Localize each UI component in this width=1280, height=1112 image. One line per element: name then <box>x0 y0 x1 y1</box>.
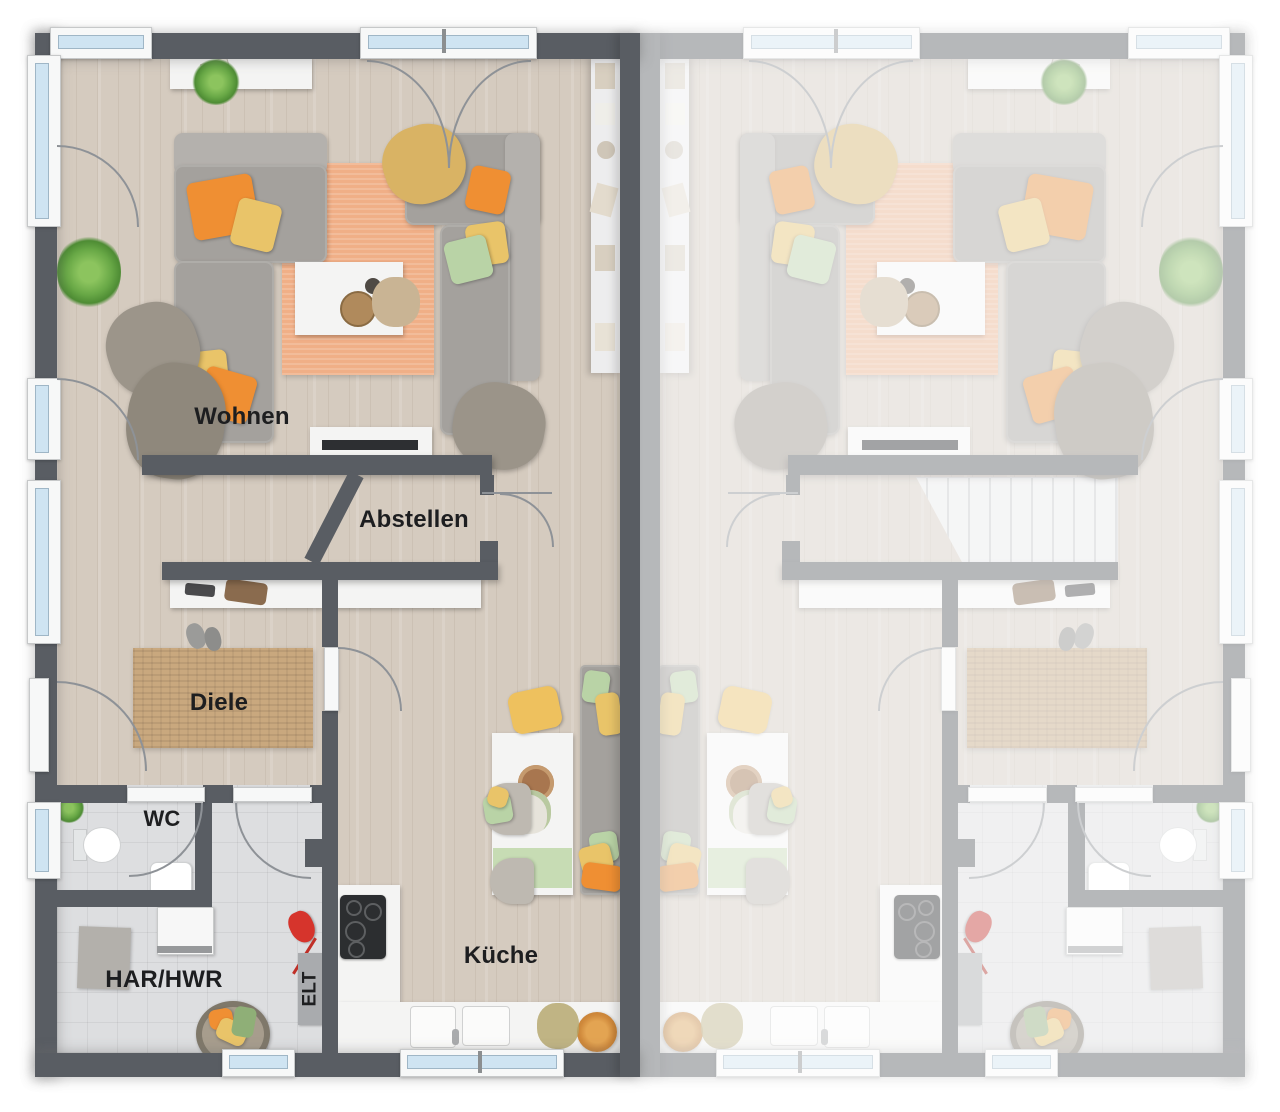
wc-door-leaf <box>127 787 205 802</box>
kitchen-door-leaf <box>941 647 956 711</box>
burner-2 <box>364 903 382 921</box>
window-top-living-glass <box>58 35 144 49</box>
vacuum-stick <box>963 937 988 974</box>
utility-door-leaf <box>968 787 1047 802</box>
floorplan: Wohnen Abstellen Diele WC HAR/HWR ELT Kü… <box>0 0 1280 1112</box>
cooktop <box>894 895 940 959</box>
pillow-yellow-2 <box>1050 349 1098 397</box>
curtain-arc-right <box>749 60 832 168</box>
storage-door-leaf <box>482 492 552 494</box>
books-3 <box>661 183 690 218</box>
window-left-mid <box>1219 378 1253 460</box>
window-top-french-mullion <box>442 29 446 53</box>
window-left-wc <box>1219 802 1253 879</box>
kitchen-plant-sprigs <box>537 1003 579 1049</box>
sink-basin-2 <box>770 1006 818 1046</box>
wall-party <box>620 33 640 1077</box>
shoe-1 <box>1071 621 1097 652</box>
faucet <box>821 1029 828 1045</box>
tv <box>322 440 418 450</box>
palm-plant <box>1159 233 1223 311</box>
wall-left <box>1223 33 1245 1077</box>
coffee-table-tray <box>340 291 376 327</box>
dining-chair-stone-2 <box>746 858 790 904</box>
dining-chair-yellow <box>716 684 774 735</box>
kitchen-door-leaf <box>324 647 339 711</box>
tv <box>862 440 958 450</box>
sofa-left-chaise <box>1006 261 1106 443</box>
wall-wc-top-a <box>55 785 127 803</box>
window-bottom-utility-glass <box>229 1055 288 1069</box>
window-top-french-glass <box>751 35 912 49</box>
label-wc: WC <box>143 808 180 830</box>
window-bottom-kitchen-mullion <box>478 1051 482 1073</box>
toilet-tank <box>1193 829 1207 861</box>
pillow-yellow-3 <box>770 220 815 267</box>
vase <box>597 141 615 159</box>
tv-board <box>848 427 970 455</box>
bench-pillow-green-bottom <box>660 830 692 864</box>
sink-basin-2 <box>462 1006 510 1046</box>
laundry-green-towel <box>1023 1005 1050 1038</box>
balcony-door-arc-1 <box>1141 145 1223 227</box>
bench-pillow-orange <box>580 861 623 892</box>
bench-pillow-yellow-bottom <box>665 842 703 877</box>
dining-bench <box>658 665 700 895</box>
wall-bottom <box>640 1053 1245 1077</box>
fruit-bowl <box>577 1012 617 1052</box>
vase <box>665 141 683 159</box>
balcony-door-arc-2 <box>1141 378 1223 460</box>
wall-living-storage <box>142 455 492 475</box>
dried-plant <box>372 277 420 327</box>
books-4 <box>595 245 615 271</box>
bookshelf-party-wall <box>659 55 689 373</box>
toilet-bowl <box>1159 827 1197 863</box>
coffee-table <box>877 262 985 335</box>
pillow-orange-3 <box>768 164 816 215</box>
laundry-basket <box>1010 1001 1084 1067</box>
table-runner <box>708 848 787 888</box>
wall-wc-right <box>1068 803 1085 890</box>
label-storage: Abstellen <box>359 508 469 532</box>
sofa-right-backrest <box>505 133 540 381</box>
books-1 <box>595 63 615 89</box>
books-3 <box>589 183 618 218</box>
burner-3 <box>345 921 366 942</box>
burner-2 <box>898 903 916 921</box>
storage-box <box>1149 926 1203 990</box>
window-bottom-kitchen-glass <box>723 1055 873 1069</box>
kitchen-door-arc <box>878 647 942 711</box>
wall-hall-kitchen-upper <box>942 562 958 647</box>
label-electrical: ELT <box>301 971 320 1006</box>
burner-3 <box>914 921 935 942</box>
window-left-wc-glass <box>35 809 49 872</box>
wall-wc-bottom <box>1068 890 1225 907</box>
hall-sideboard-right <box>799 578 945 608</box>
window-bottom-utility-glass <box>992 1055 1051 1069</box>
wall-wc-top-a <box>1153 785 1225 803</box>
armchair-throw-2 <box>1047 357 1160 486</box>
dining-chair-stone-1 <box>749 783 797 835</box>
burner-4 <box>348 941 365 958</box>
wall-hall-kitchen-lower <box>322 711 338 1053</box>
pillow-green-1 <box>785 233 837 285</box>
wall-storage-jamb-bottom <box>782 541 800 570</box>
wall-party <box>640 33 660 1077</box>
sofa-left-back <box>953 133 1106 175</box>
window-bottom-utility <box>985 1049 1058 1077</box>
books-2 <box>595 103 615 125</box>
entrance-door-leaf <box>29 678 49 772</box>
living-rug <box>846 163 998 375</box>
sofa-right-seat <box>770 225 840 435</box>
burner-1 <box>346 900 362 916</box>
wall-wc-bottom <box>55 890 212 907</box>
washing-machine-front <box>157 946 212 953</box>
storage-door-arc <box>726 493 780 547</box>
window-top-french-mullion <box>834 29 838 53</box>
keys-glasses <box>185 583 216 598</box>
fruit-bowl <box>663 1012 703 1052</box>
kitchen-counter-left <box>880 885 942 1005</box>
elt-cabinet <box>958 953 982 1025</box>
label-living: Wohnen <box>194 405 289 429</box>
blanket-tan <box>805 114 907 214</box>
sofa-right-top-seat <box>740 133 875 225</box>
dining-chair-stone-2 <box>490 858 534 904</box>
wall-hall-kitchen-upper <box>322 562 338 647</box>
window-left-mid-glass <box>35 385 49 453</box>
wall-hall-kitchen-lower <box>942 711 958 1053</box>
dried-plant <box>860 277 908 327</box>
hall-sideboard-right <box>335 578 481 608</box>
window-top-living <box>1128 27 1230 59</box>
napkin-yellow <box>769 784 794 809</box>
window-top-french <box>743 27 920 59</box>
unit-left: Wohnen Abstellen Diele WC HAR/HWR ELT Kü… <box>35 33 640 1077</box>
staircase <box>916 477 1118 563</box>
kitchen-counter-bottom <box>658 1002 942 1053</box>
elt-wall-box <box>957 839 975 867</box>
centerpiece-bowl <box>726 765 762 801</box>
shoe-2 <box>1057 626 1078 653</box>
wall-living-storage <box>788 455 1138 475</box>
plant-sideboard <box>1039 59 1089 105</box>
centerpiece-flowers <box>729 790 775 834</box>
wall-wc-top-b <box>1047 785 1077 803</box>
storage-door-leaf <box>728 492 798 494</box>
label-hallway: Diele <box>190 691 248 715</box>
wall-storage-jamb-top <box>786 475 800 495</box>
dining-table <box>707 733 788 895</box>
laundry-yellow <box>1030 1016 1066 1049</box>
blanket-gray <box>728 376 834 477</box>
window-left-living-glass <box>35 63 49 219</box>
books-5 <box>665 323 685 351</box>
label-utility: HAR/HWR <box>105 968 222 992</box>
washing-machine <box>1066 907 1123 955</box>
coffee-table-vase <box>899 278 915 294</box>
label-kitchen: Küche <box>464 944 538 968</box>
toilet-bowl <box>83 827 121 863</box>
bookshelf-party-wall <box>591 55 621 373</box>
window-left-hall <box>1219 480 1253 644</box>
window-left-living-glass <box>1231 63 1245 219</box>
sofa-right-backrest <box>740 133 775 381</box>
unit-right: Wohnen Abstellen Diele WC HAR/HWR ELT Kü… <box>640 33 1245 1077</box>
kitchen-plant-sprigs <box>701 1003 743 1049</box>
faucet <box>452 1029 459 1045</box>
pillow-orange-2 <box>1021 365 1084 425</box>
wall-wc-top-c <box>958 785 970 803</box>
window-left-living <box>1219 55 1253 227</box>
utility-door-arc <box>969 803 1045 879</box>
bench-pillow-yellow-top <box>656 692 686 737</box>
sink-basin-1 <box>824 1006 870 1048</box>
window-left-wc-glass <box>1231 809 1245 872</box>
pillow-orange-1 <box>1019 173 1094 242</box>
washing-machine-front <box>1068 946 1123 953</box>
cooktop <box>340 895 386 959</box>
wc-sink <box>1088 862 1130 896</box>
book-on-sideboard <box>1046 57 1080 90</box>
wall-wc-top-b <box>203 785 233 803</box>
wall-top <box>640 33 1245 59</box>
window-bottom-kitchen-glass <box>407 1055 557 1069</box>
window-left-hall-glass <box>1231 488 1245 636</box>
window-bottom-kitchen-mullion <box>798 1051 802 1073</box>
keys-glasses <box>1065 583 1096 598</box>
window-top-living-glass <box>1136 35 1222 49</box>
floor-tile-wc-utility <box>958 785 1223 1053</box>
palm-plant <box>57 233 121 311</box>
armchair-throw-1 <box>1069 291 1185 407</box>
laundry-orange <box>1045 1007 1072 1031</box>
burner-1 <box>918 900 934 916</box>
books-2 <box>665 103 685 125</box>
napkin-green <box>766 793 798 825</box>
burner-4 <box>915 941 932 958</box>
coffee-table-tray <box>904 291 940 327</box>
sink-basin-1 <box>410 1006 456 1048</box>
bench-pillow-orange <box>656 861 699 892</box>
sideboard-top <box>968 57 1110 89</box>
entrance-door-arc <box>1133 681 1223 771</box>
wc-plant <box>1195 793 1227 823</box>
wc-door-leaf <box>1075 787 1153 802</box>
books-5 <box>595 323 615 351</box>
sofa-left-seat <box>953 165 1106 263</box>
window-top-french-glass <box>368 35 529 49</box>
wc-door-arc <box>1077 803 1151 877</box>
books-4 <box>665 245 685 271</box>
utility-door-leaf <box>233 787 312 802</box>
curtain-arc-left <box>830 60 913 168</box>
plant-sideboard <box>191 59 241 105</box>
wall-storage-bottom <box>782 562 1118 580</box>
window-left-hall-glass <box>35 488 49 636</box>
entrance-door-leaf <box>1231 678 1251 772</box>
bench-pillow-green-top <box>669 669 699 704</box>
window-left-mid-glass <box>1231 385 1245 453</box>
hallway-rug <box>967 648 1147 748</box>
floor-wood <box>658 57 1225 1053</box>
vacuum-body <box>960 907 995 946</box>
window-bottom-kitchen <box>716 1049 880 1077</box>
pillow-yellow-1 <box>997 196 1051 253</box>
books-1 <box>665 63 685 89</box>
bag <box>1012 578 1057 606</box>
hall-sideboard-left <box>958 578 1110 608</box>
